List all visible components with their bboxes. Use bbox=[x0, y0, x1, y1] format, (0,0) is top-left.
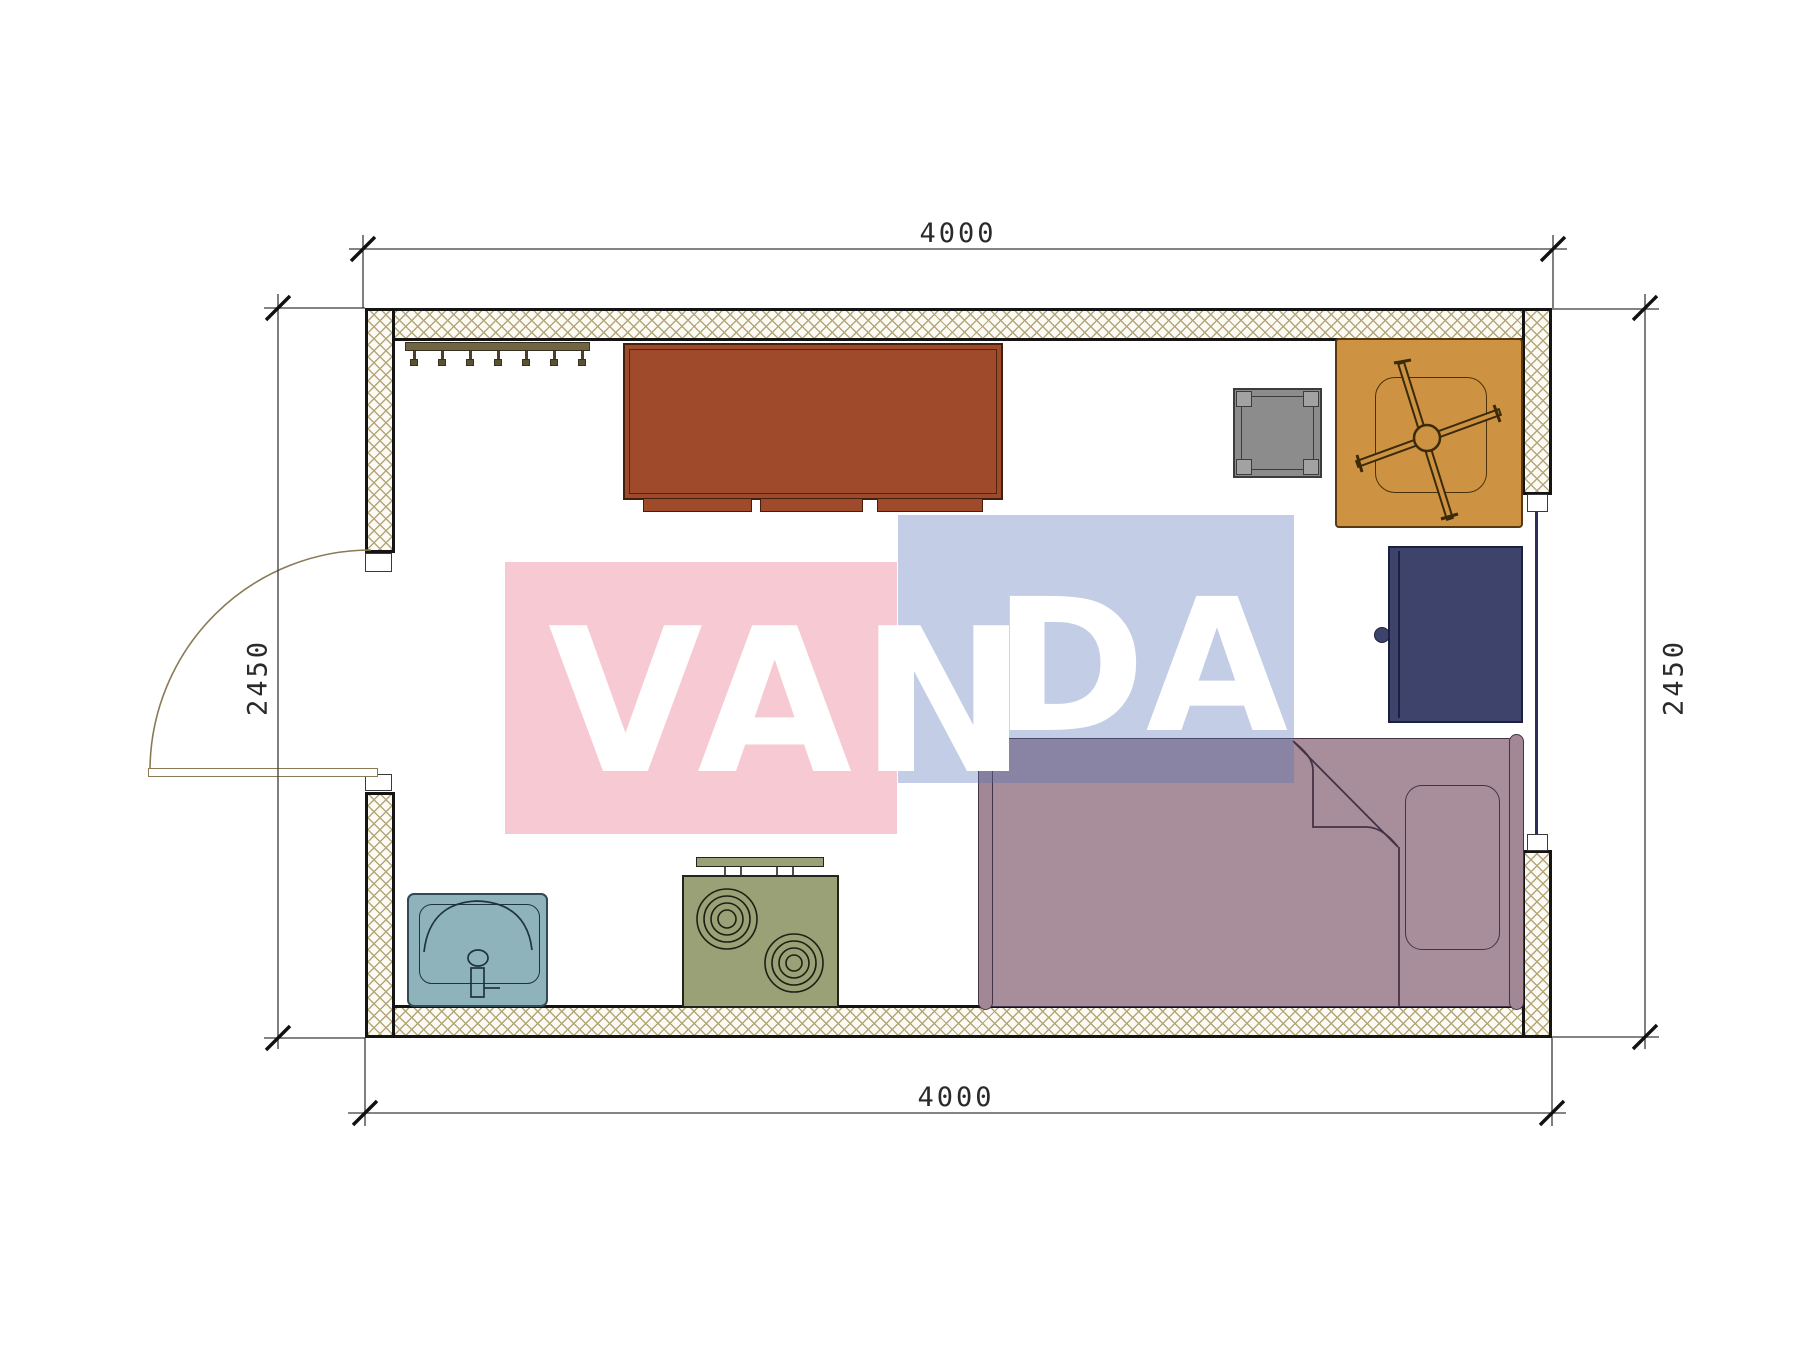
watermark-text-da: DA bbox=[993, 575, 1288, 759]
dimension-label-top: 4000 bbox=[898, 218, 1018, 249]
bed-blanket-fold bbox=[1293, 741, 1399, 1006]
sink-basin bbox=[424, 901, 532, 997]
stove-burner-left bbox=[697, 889, 757, 949]
dimension-label-bottom: 4000 bbox=[896, 1082, 1016, 1113]
dimension-label-right: 2450 bbox=[1659, 618, 1690, 738]
dimension-label-left: 2450 bbox=[243, 618, 274, 738]
stove-burner-right bbox=[765, 934, 823, 992]
watermark-text-van: VAN bbox=[548, 603, 1035, 803]
armchair-base bbox=[1357, 360, 1500, 519]
floor-plan: 4000 4000 2450 2450 VAN DA bbox=[0, 0, 1800, 1350]
stove-handle-ticks bbox=[725, 867, 793, 876]
